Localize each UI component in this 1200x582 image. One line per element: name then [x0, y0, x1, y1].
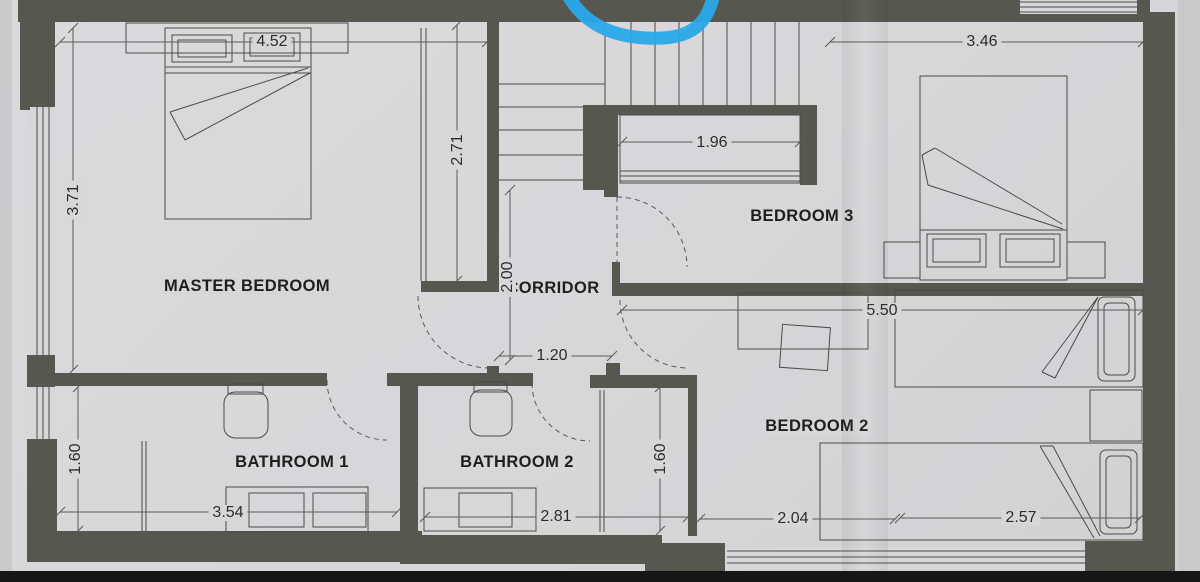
master-bed [126, 23, 348, 219]
room-label-corridor: CORRIDOR [502, 280, 603, 297]
door-swing-bathroom2 [532, 383, 590, 441]
door-swings [327, 197, 688, 441]
master-wardrobe [421, 28, 426, 281]
bedroom3-bed [884, 76, 1105, 280]
dim-corridor-length: 2.00 [500, 257, 516, 296]
scan-edge [0, 571, 1200, 582]
dim-bedroom3-width: 3.46 [962, 34, 1001, 50]
dim-closet-width: 1.96 [692, 135, 731, 151]
pen-stroke [566, 0, 714, 38]
dim-bathroom2-width: 2.81 [536, 509, 575, 525]
door-swing-bedroom3 [617, 197, 687, 267]
dim-bathroom1-width: 3.54 [208, 505, 247, 521]
stairs [499, 22, 799, 180]
bathroom1-shower-screen [142, 441, 146, 532]
dim-bathroom2-depth: 1.60 [653, 439, 669, 478]
dim-bedroom2-opening: 2.04 [773, 511, 812, 527]
bathroom1-toilet [224, 384, 268, 438]
nightstand [1090, 390, 1142, 441]
bathroom2-toilet [470, 382, 512, 436]
dim-corridor-width: 1.20 [532, 348, 571, 364]
door-swing-bathroom1 [327, 380, 387, 440]
dim-master-width: 4.52 [252, 34, 291, 50]
room-label-master-bedroom: MASTER BEDROOM [160, 278, 334, 295]
floor-plan-scan: MASTER BEDROOM CORRIDOR BEDROOM 3 BEDROO… [0, 0, 1200, 582]
dim-bedroom2-bed-span: 2.57 [1001, 510, 1040, 526]
nightstand [1067, 242, 1105, 278]
bathroom2-vanity [424, 488, 536, 531]
dim-master-wardrobe: 2.71 [450, 130, 466, 169]
chair [780, 324, 831, 370]
bathroom2-shower-screen [600, 390, 604, 532]
dim-master-depth: 3.71 [66, 180, 82, 219]
room-label-bathroom1: BATHROOM 1 [231, 454, 353, 471]
nightstand [884, 242, 920, 278]
bedroom2-bed-top [895, 290, 1143, 387]
room-label-bathroom2: BATHROOM 2 [456, 454, 578, 471]
door-swing-master [418, 296, 490, 368]
dim-bathroom1-depth: 1.60 [68, 439, 84, 478]
paper-crease [842, 0, 888, 574]
